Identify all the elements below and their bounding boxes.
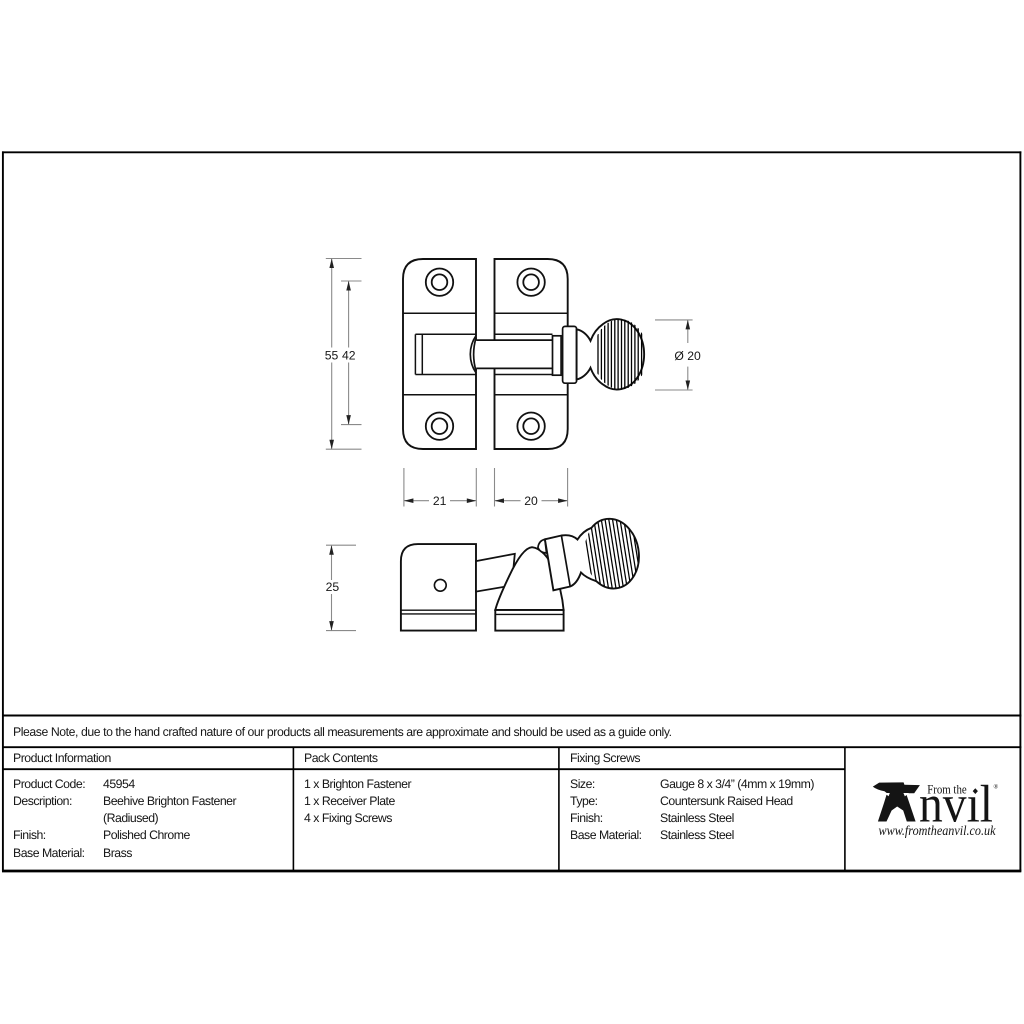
svg-text:www.fromtheanvil.co.uk: www.fromtheanvil.co.uk [879,823,997,838]
svg-text:®: ® [993,784,998,791]
svg-text:55: 55 [325,348,339,362]
svg-text:21: 21 [433,494,447,508]
svg-text:From the: From the [927,782,967,797]
svg-text:20: 20 [524,494,538,508]
svg-text:25: 25 [326,580,340,594]
svg-text:Ø 20: Ø 20 [674,349,701,363]
svg-text:42: 42 [342,348,356,362]
